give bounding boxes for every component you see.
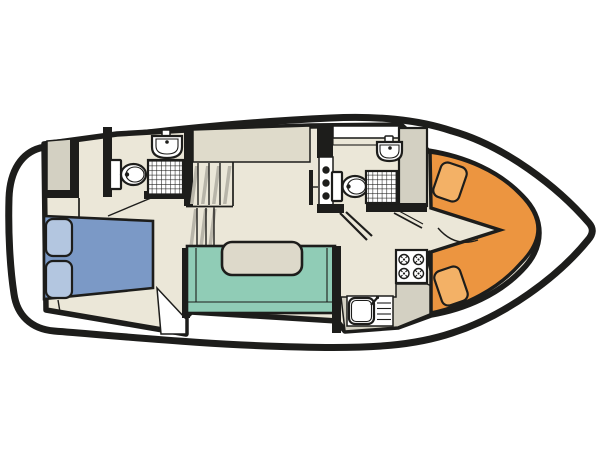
- bathroom-wall-bottom-left: [317, 204, 344, 213]
- wardrobe: [47, 139, 71, 192]
- wall-dot: [322, 179, 329, 186]
- toilet-flush-dot: [346, 184, 350, 188]
- helm-console-band: [193, 126, 310, 162]
- galley-sink-icon: [347, 296, 393, 326]
- pillow: [46, 261, 72, 298]
- drain-dot: [388, 146, 392, 150]
- galley-wall-left: [332, 246, 341, 333]
- toilet-tank: [110, 160, 121, 189]
- toilet-tank: [332, 172, 342, 201]
- wall-dot: [322, 166, 329, 173]
- toilet-flush-dot: [125, 172, 129, 176]
- bathroom-wall-bottom-right: [366, 203, 399, 212]
- shower-grid: [148, 160, 183, 195]
- pillar-wall-bottom: [399, 203, 427, 212]
- wardrobe-wall: [70, 139, 79, 198]
- wardrobe-pillar: [399, 128, 427, 206]
- shower-grid: [366, 171, 397, 203]
- wall-dot: [322, 192, 329, 199]
- pillow: [46, 219, 72, 256]
- burner-center: [417, 272, 419, 274]
- burner-center: [403, 272, 405, 274]
- burner-center: [417, 258, 419, 260]
- stove-icon: [396, 250, 427, 283]
- boat-floor-plan-diagram: [0, 0, 605, 454]
- bulkhead-stub: [309, 170, 313, 205]
- saloon-table: [222, 242, 302, 275]
- drain-dot: [165, 140, 169, 144]
- shower-icon: [366, 171, 397, 203]
- sink-faucet-dot: [376, 296, 379, 299]
- shower-icon: [148, 160, 183, 195]
- bathroom-wall-top-left: [317, 125, 333, 158]
- wardrobe-wall-bottom: [46, 190, 79, 198]
- burner-center: [403, 258, 405, 260]
